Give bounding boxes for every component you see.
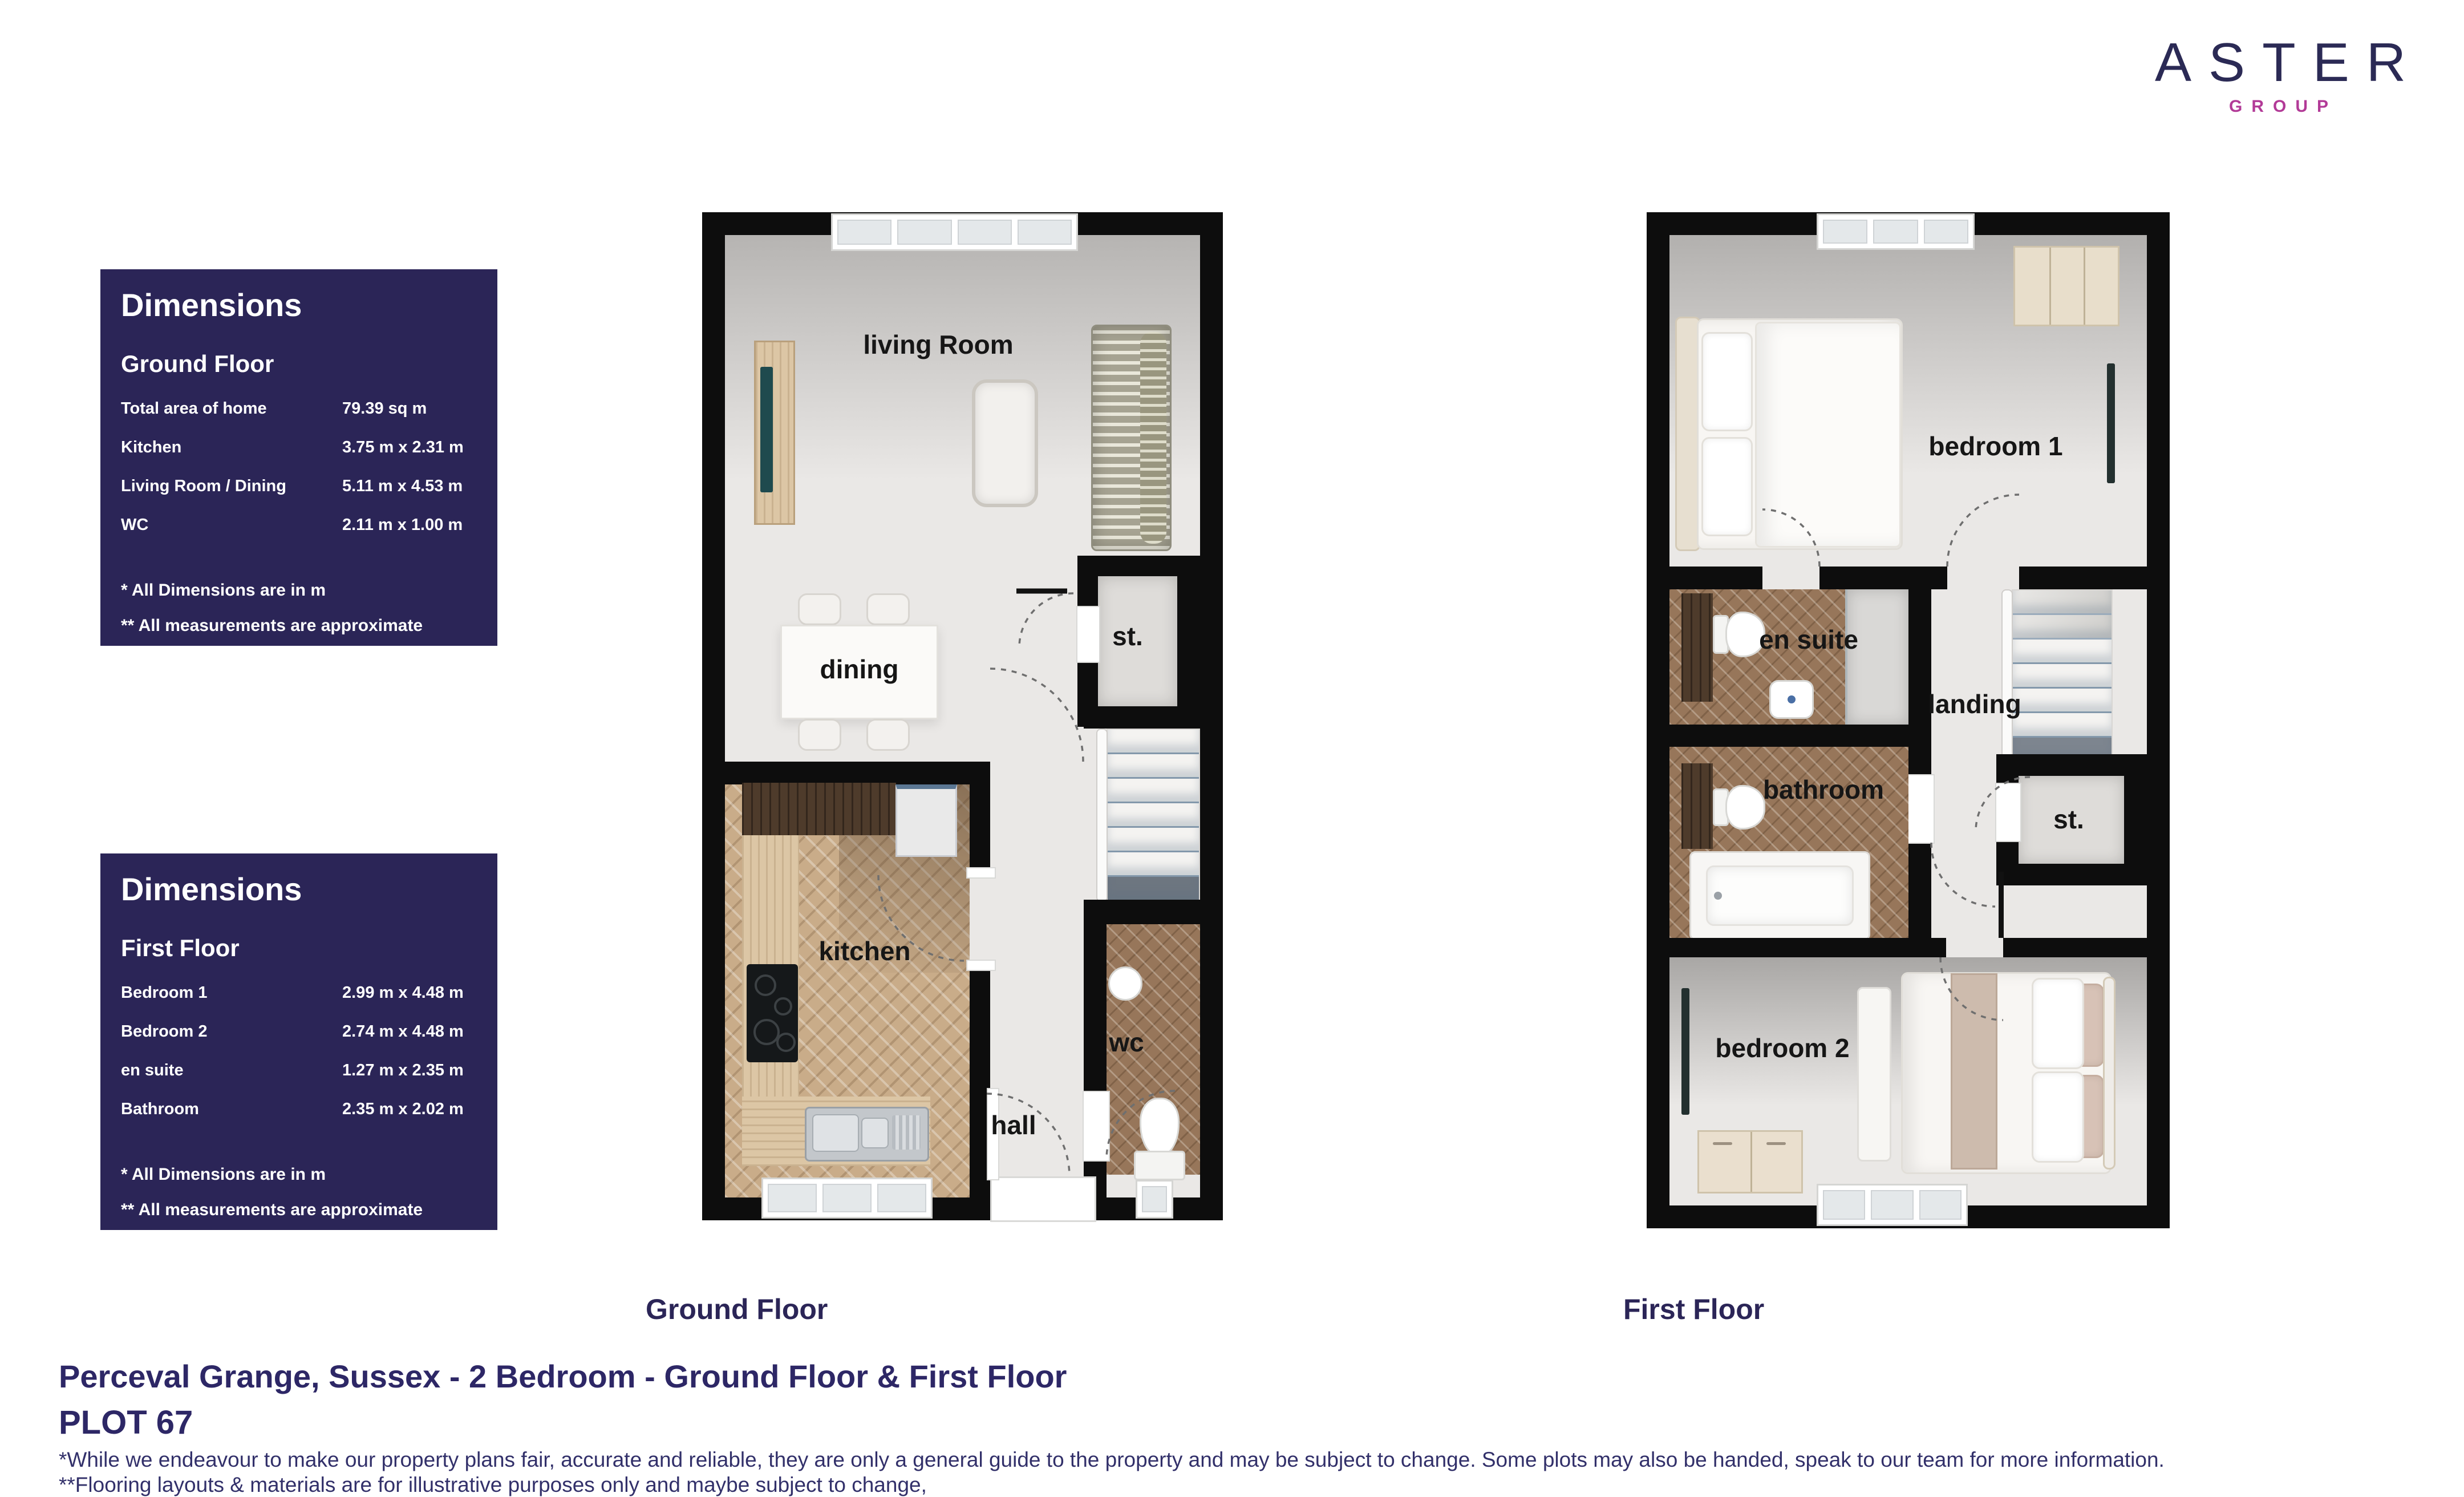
bathtub-basin <box>1706 865 1854 926</box>
chair-icon <box>866 719 910 751</box>
room-label-storage: st. <box>1085 621 1170 652</box>
pillow-icon <box>2032 978 2084 1069</box>
basin-icon <box>1769 680 1814 719</box>
dimension-label: en suite <box>121 1061 184 1080</box>
toilet-tank <box>1134 1151 1185 1180</box>
window-icon <box>1817 1184 1968 1226</box>
dimension-value: 2.74 m x 4.48 m <box>342 1022 464 1041</box>
sofa-icon <box>1091 325 1172 551</box>
dimension-value: 5.11 m x 4.53 m <box>342 477 463 496</box>
window-pane <box>877 1184 926 1212</box>
room-label-bedroom2: bedroom 2 <box>1668 1033 1896 1063</box>
tv-icon <box>2107 363 2115 483</box>
logo-wordmark: ASTER <box>2155 35 2412 90</box>
drawer-seam <box>1750 1132 1752 1192</box>
door-frame <box>966 960 996 971</box>
dimension-row: WC 2.11 m x 1.00 m <box>121 516 480 539</box>
stair-tread <box>1108 730 1199 756</box>
burner-icon <box>774 997 792 1015</box>
caption-ground-floor: Ground Floor <box>646 1293 828 1326</box>
stair-tread <box>1108 754 1199 781</box>
wardrobe-seam <box>2084 248 2085 325</box>
window-pane <box>1142 1186 1167 1212</box>
window-icon <box>761 1178 933 1219</box>
coffee-table-icon <box>972 379 1038 507</box>
stair-tread <box>2013 664 2112 691</box>
page-title: Perceval Grange, Sussex - 2 Bedroom - Gr… <box>59 1358 1067 1395</box>
divider-wall <box>1669 567 1762 589</box>
disclaimer-line-2: **Flooring layouts & materials are for i… <box>59 1473 927 1497</box>
room-label-dining: dining <box>782 654 937 685</box>
dimension-value: 3.75 m x 2.31 m <box>342 438 464 457</box>
dining-table-icon: dining <box>780 625 938 719</box>
dimensions-note: ** All measurements are approximate <box>121 616 423 636</box>
bed-headboard <box>2103 977 2116 1170</box>
stair-rail <box>1096 729 1108 902</box>
toilet-icon <box>1140 1098 1180 1156</box>
window-pane <box>822 1184 872 1212</box>
drawer-handle <box>1713 1142 1732 1145</box>
fridge-icon <box>895 784 957 857</box>
dimensions-title: Dimensions <box>121 871 302 908</box>
drawers-icon <box>1697 1130 1803 1193</box>
staircase <box>2012 589 2113 760</box>
room-label-living: living Room <box>824 329 1052 360</box>
window-icon <box>1136 1180 1173 1219</box>
divider-wall <box>2019 567 2147 589</box>
window-pane <box>1823 1190 1865 1220</box>
dimensions-panel-ground: Dimensions Ground Floor Total area of ho… <box>100 269 497 646</box>
wc-door <box>1083 1091 1110 1162</box>
front-door-threshold <box>990 1176 1096 1222</box>
window-pane <box>1823 220 1867 244</box>
room-label-kitchen: kitchen <box>779 936 950 966</box>
ensuite-bathroom-wall <box>1669 725 1908 747</box>
door-frame <box>966 867 996 879</box>
window-icon <box>831 213 1078 251</box>
tap-icon <box>1788 695 1796 703</box>
bedroom2-door-leaf <box>1999 872 2004 938</box>
kitchen-divider-wall <box>725 762 990 784</box>
dimension-row: Total area of home 79.39 sq m <box>121 399 480 422</box>
room-label-hall: hall <box>957 1110 1071 1140</box>
dimension-value: 2.99 m x 4.48 m <box>342 984 464 1002</box>
dimension-label: WC <box>121 516 148 535</box>
room-label-wc: wc <box>1084 1027 1169 1058</box>
stair-tread <box>1108 852 1199 879</box>
pillow-icon <box>1701 332 1753 431</box>
bed-bench-icon <box>1857 987 1891 1162</box>
stair-rail <box>2001 589 2013 763</box>
logo-subtitle: GROUP <box>2155 98 2412 115</box>
hob-icon <box>747 964 798 1062</box>
bed-runner <box>1951 973 1997 1170</box>
dimension-row: Bathroom 2.35 m x 2.02 m <box>121 1100 480 1123</box>
room-label-storage: st. <box>2026 804 2112 835</box>
wc-basin-icon <box>1108 966 1142 1001</box>
dimensions-floor-name: Ground Floor <box>121 350 274 378</box>
stair-tread <box>1108 803 1199 830</box>
stair-winder <box>2013 590 2112 617</box>
shower-glass <box>1845 589 1847 725</box>
stair-wall <box>1084 707 1200 729</box>
room-label-bathroom: bathroom <box>1738 774 1909 805</box>
pillow-icon <box>1701 437 1753 536</box>
dimension-row: Living Room / Dining 5.11 m x 4.53 m <box>121 477 480 500</box>
window-icon <box>1817 213 1975 250</box>
dimension-row: Kitchen 3.75 m x 2.31 m <box>121 438 480 461</box>
bedroom2-divider-wall <box>2003 938 2147 957</box>
dimensions-floor-name: First Floor <box>121 934 240 962</box>
wardrobe-seam <box>2049 248 2051 325</box>
window-pane <box>768 1184 817 1212</box>
tv-icon <box>760 367 773 492</box>
bathtub-icon <box>1689 851 1870 940</box>
kitchen-hall-wall <box>970 762 990 875</box>
stair-tread <box>2013 640 2112 666</box>
window-pane <box>897 220 951 245</box>
room-label-landing: landing <box>1889 689 2060 719</box>
burner-icon <box>755 974 776 996</box>
dimension-row: Bedroom 2 2.74 m x 4.48 m <box>121 1022 480 1045</box>
dimensions-title: Dimensions <box>121 286 302 323</box>
plot-number: PLOT 67 <box>59 1403 193 1442</box>
dimension-value: 2.35 m x 2.02 m <box>342 1100 464 1119</box>
dimension-row: Bedroom 1 2.99 m x 4.48 m <box>121 984 480 1006</box>
dimensions-note: * All Dimensions are in m <box>121 581 326 600</box>
stair-tread <box>1108 828 1199 855</box>
pillow-icon <box>2032 1071 2084 1163</box>
window-pane <box>1924 220 1968 244</box>
duvet <box>1755 322 1901 548</box>
dimension-label: Bathroom <box>121 1100 199 1119</box>
dimensions-note: ** All measurements are approximate <box>121 1200 423 1220</box>
brochure-page: ASTER GROUP Dimensions Ground Floor Tota… <box>0 0 2464 1491</box>
chair-icon <box>798 593 841 625</box>
window-pane <box>958 220 1012 245</box>
dimension-value: 2.11 m x 1.00 m <box>342 516 463 535</box>
wc-wall <box>1084 924 1107 1091</box>
kitchen-counter-top-icon <box>742 783 896 835</box>
drawer-handle <box>1766 1142 1786 1145</box>
dimension-value: 79.39 sq m <box>342 399 427 418</box>
room-label-ensuite: en suite <box>1723 624 1894 655</box>
ensuite-landing-wall <box>1908 589 1931 938</box>
kitchen-sink-icon <box>805 1107 929 1162</box>
dimension-label: Bedroom 2 <box>121 1022 207 1041</box>
sofa-backrest <box>1140 332 1166 544</box>
dimension-label: Total area of home <box>121 399 267 418</box>
chair-icon <box>866 593 910 625</box>
chair-icon <box>798 719 841 751</box>
storage-door <box>1995 783 2021 842</box>
bedroom2-divider-wall <box>1669 938 1946 957</box>
dimension-row: en suite 1.27 m x 2.35 m <box>121 1061 480 1084</box>
burner-icon <box>776 1033 796 1052</box>
window-pane <box>1018 220 1072 245</box>
stair-tread <box>1108 779 1199 806</box>
dimension-label: Living Room / Dining <box>121 477 286 496</box>
dimensions-note: * All Dimensions are in m <box>121 1165 326 1184</box>
window-pane <box>1919 1190 1962 1220</box>
aster-group-logo: ASTER GROUP <box>2155 35 2412 115</box>
dimension-label: Kitchen <box>121 438 181 457</box>
staircase <box>1107 729 1200 900</box>
bathroom-door <box>1907 774 1935 844</box>
tap-icon <box>1714 892 1722 900</box>
sink-bowl <box>812 1114 859 1152</box>
floor-plan-ground: dining st. <box>702 212 1223 1220</box>
drainer <box>892 1115 921 1150</box>
dimensions-panel-first: Dimensions First Floor Bedroom 1 2.99 m … <box>100 853 497 1230</box>
caption-first-floor: First Floor <box>1623 1293 1764 1326</box>
divider-wall <box>1819 567 1947 589</box>
disclaimer-line-1: *While we endeavour to make our property… <box>59 1448 2165 1472</box>
sink-bowl <box>861 1118 889 1148</box>
tv-unit-icon <box>754 341 795 525</box>
wc-wall <box>1084 900 1200 924</box>
floor-plan-first: st. <box>1647 212 2170 1228</box>
window-pane <box>1873 220 1918 244</box>
stair-winder <box>2013 615 2112 642</box>
room-label-bedroom1: bedroom 1 <box>1882 431 2110 462</box>
dimension-value: 1.27 m x 2.35 m <box>342 1061 464 1080</box>
window-pane <box>1871 1190 1913 1220</box>
wardrobe-icon <box>2013 246 2119 326</box>
window-pane <box>837 220 891 245</box>
ensuite-vanity-icon <box>1681 593 1713 702</box>
bathroom-vanity-icon <box>1681 763 1713 849</box>
dimension-label: Bedroom 1 <box>121 984 207 1002</box>
